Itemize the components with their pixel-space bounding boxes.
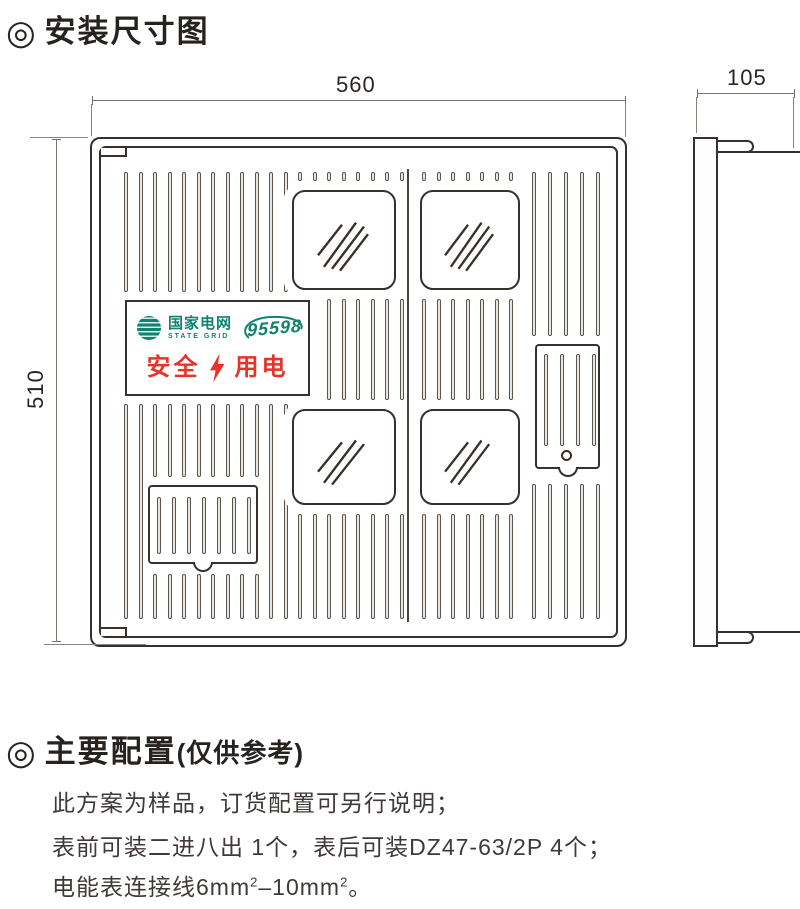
- vent-slot: [139, 404, 143, 619]
- glass-reflection-icon: [422, 192, 518, 288]
- vent-slot: [371, 299, 375, 400]
- vent-slot: [495, 299, 499, 400]
- vent-slot: [124, 172, 128, 292]
- state-grid-logo-icon: [137, 316, 161, 340]
- vent-slot: [202, 497, 206, 554]
- extension-line: [625, 104, 626, 137]
- vent-slot: [480, 172, 484, 181]
- dim-line-width: [92, 100, 626, 101]
- frame-step: [101, 627, 127, 636]
- side-mount-tab: [716, 140, 754, 153]
- vent-slot: [371, 514, 375, 619]
- dim-tick: [697, 89, 698, 98]
- dim-tick: [52, 641, 61, 642]
- breaker-cover-panel: [535, 344, 600, 469]
- meter-window: [292, 190, 396, 290]
- frame-step: [101, 148, 127, 157]
- vent-slot: [451, 172, 455, 181]
- vent-slot: [240, 404, 244, 477]
- note-line: 此方案为样品，订货配置可另行说明；: [52, 784, 460, 818]
- section-title: 安装尺寸图: [45, 6, 210, 51]
- note-text: 电能表连接线6mm: [52, 874, 250, 900]
- vent-slot: [226, 574, 230, 619]
- section-heading-install: ◎ 安装尺寸图: [6, 6, 210, 51]
- vent-slot: [211, 172, 215, 292]
- vent-slot: [342, 299, 346, 400]
- hotline-mark: 95598: [239, 314, 296, 342]
- cable-cover-panel: [148, 485, 258, 564]
- section-title-suffix: (仅供参考): [177, 733, 304, 770]
- dim-line-depth: [697, 93, 795, 94]
- meter-window: [420, 409, 520, 505]
- vent-slot: [576, 354, 580, 446]
- vent-slot: [187, 497, 191, 554]
- section-bullet-icon: ◎: [6, 736, 36, 770]
- note-text: 表前可装二进八出 1个，表后可装DZ47-63/2P 4个；: [52, 834, 612, 860]
- glass-reflection-icon: [422, 411, 518, 503]
- slogan-row: 安全 用电: [127, 353, 308, 383]
- extension-line: [696, 97, 697, 133]
- vent-slot: [495, 172, 499, 181]
- section-bullet-icon: ◎: [6, 16, 36, 50]
- vent-slot: [437, 172, 441, 181]
- vent-slot: [247, 497, 251, 554]
- vent-slot: [197, 404, 201, 477]
- side-view-door: [693, 137, 718, 647]
- brand-name-en: STATE GRID: [168, 333, 232, 340]
- vent-slot: [240, 172, 244, 292]
- meter-window: [420, 190, 520, 290]
- vent-slot: [422, 172, 426, 181]
- vent-slot: [564, 484, 568, 619]
- vent-slot: [385, 514, 389, 619]
- note-line: 电能表连接线6mm2–10mm2。: [52, 868, 372, 902]
- brand-name-cn: 国家电网: [168, 316, 232, 331]
- vent-slot: [532, 172, 536, 336]
- side-mount-tab: [716, 631, 754, 644]
- vent-slot: [211, 574, 215, 619]
- vent-slot: [509, 514, 513, 619]
- vent-slot: [313, 514, 317, 619]
- extension-line: [44, 644, 146, 645]
- vent-slot: [226, 172, 230, 292]
- vent-slot: [466, 299, 470, 400]
- vent-slot: [532, 484, 536, 619]
- vent-slot: [466, 172, 470, 181]
- vent-slot: [451, 299, 455, 400]
- vent-slot: [509, 172, 513, 181]
- vent-slot: [495, 514, 499, 619]
- door-seam-line: [407, 169, 409, 622]
- vent-slot: [422, 514, 426, 619]
- vent-slot: [284, 172, 288, 292]
- vent-slot: [240, 574, 244, 619]
- vent-slot: [313, 172, 317, 181]
- side-view-body: [716, 151, 800, 633]
- vent-slot: [356, 172, 360, 181]
- vent-slot: [371, 172, 375, 181]
- dim-tick: [52, 139, 61, 140]
- glass-reflection-icon: [294, 411, 394, 503]
- vent-slot: [356, 299, 360, 400]
- vent-slot: [385, 299, 389, 400]
- vent-slot: [327, 172, 331, 181]
- brand-plate: 国家电网 STATE GRID 95598 安全 用电: [125, 300, 310, 396]
- glass-reflection-icon: [294, 192, 394, 288]
- vent-slot: [422, 299, 426, 400]
- vent-slot: [168, 574, 172, 619]
- dim-depth-label: 105: [727, 65, 767, 91]
- vent-slot: [168, 404, 172, 477]
- vent-slot: [400, 514, 404, 619]
- dim-tick: [92, 96, 93, 105]
- vent-slot: [139, 172, 143, 292]
- vent-slot: [437, 514, 441, 619]
- vent-slot: [342, 172, 346, 181]
- vent-slot: [182, 574, 186, 619]
- vent-slot: [217, 497, 221, 554]
- vent-slot: [168, 172, 172, 292]
- vent-slot: [342, 514, 346, 619]
- catalog-page: ◎ 安装尺寸图 国家电网 STATE GRID 95598: [0, 0, 800, 909]
- brand-text: 国家电网 STATE GRID: [168, 316, 232, 340]
- latch-hole: [561, 450, 572, 461]
- vent-slot: [548, 484, 552, 619]
- dim-height-label: 510: [23, 369, 49, 409]
- vent-slot: [400, 299, 404, 400]
- vent-slot: [548, 172, 552, 336]
- vent-slot: [153, 404, 157, 477]
- vent-slot: [255, 404, 259, 477]
- extension-line: [91, 104, 92, 136]
- note-text: –10mm: [258, 874, 340, 900]
- vent-slot: [509, 299, 513, 400]
- vent-slot: [451, 514, 455, 619]
- vent-slot: [197, 574, 201, 619]
- vent-slot: [385, 172, 389, 181]
- extension-line: [793, 97, 794, 148]
- vent-slot: [182, 404, 186, 477]
- vent-slot: [596, 172, 600, 336]
- vent-slot: [480, 299, 484, 400]
- vent-slot: [153, 574, 157, 619]
- vent-slot: [197, 172, 201, 292]
- extension-line: [30, 137, 88, 138]
- vent-slot: [564, 172, 568, 336]
- vent-slot: [182, 172, 186, 292]
- vent-slot: [153, 172, 157, 292]
- vent-slot: [327, 299, 331, 400]
- note-text: 此方案为样品，订货配置可另行说明；: [52, 790, 460, 816]
- lightning-icon: [210, 353, 226, 383]
- vent-slot: [596, 484, 600, 619]
- vent-slot: [544, 354, 548, 446]
- vent-slot: [298, 172, 302, 181]
- vent-slot: [284, 404, 288, 619]
- vent-slot: [480, 514, 484, 619]
- vent-slot: [255, 574, 259, 619]
- brand-row: 国家电网 STATE GRID 95598: [127, 302, 308, 342]
- vent-slot: [580, 484, 584, 619]
- vent-slot: [211, 404, 215, 477]
- vent-slot: [269, 172, 273, 292]
- vent-slot: [580, 172, 584, 336]
- vent-slot: [327, 514, 331, 619]
- vent-slot: [269, 404, 273, 619]
- vent-slot: [400, 172, 404, 181]
- front-view: 国家电网 STATE GRID 95598 安全 用电: [90, 137, 627, 647]
- dim-line-height: [56, 139, 57, 642]
- vent-slot: [298, 514, 302, 619]
- slogan-left: 安全: [147, 356, 201, 380]
- note-line: 表前可装二进八出 1个，表后可装DZ47-63/2P 4个；: [52, 828, 612, 862]
- slogan-right: 用电: [235, 356, 289, 380]
- vent-slot: [466, 514, 470, 619]
- vent-slot: [560, 354, 564, 446]
- vent-slot: [226, 404, 230, 477]
- section-heading-config: ◎ 主要配置 (仅供参考): [6, 726, 304, 771]
- section-title: 主要配置: [45, 726, 177, 771]
- vent-slot: [356, 514, 360, 619]
- meter-window: [292, 409, 396, 505]
- vent-slot: [124, 404, 128, 619]
- vent-slot: [437, 299, 441, 400]
- dim-width-label: 560: [336, 72, 376, 98]
- vent-slot: [592, 354, 596, 446]
- vent-slot: [255, 172, 259, 292]
- vent-slot: [157, 497, 161, 554]
- note-text: 。: [348, 874, 372, 900]
- vent-slot: [232, 497, 236, 554]
- vent-slot: [172, 497, 176, 554]
